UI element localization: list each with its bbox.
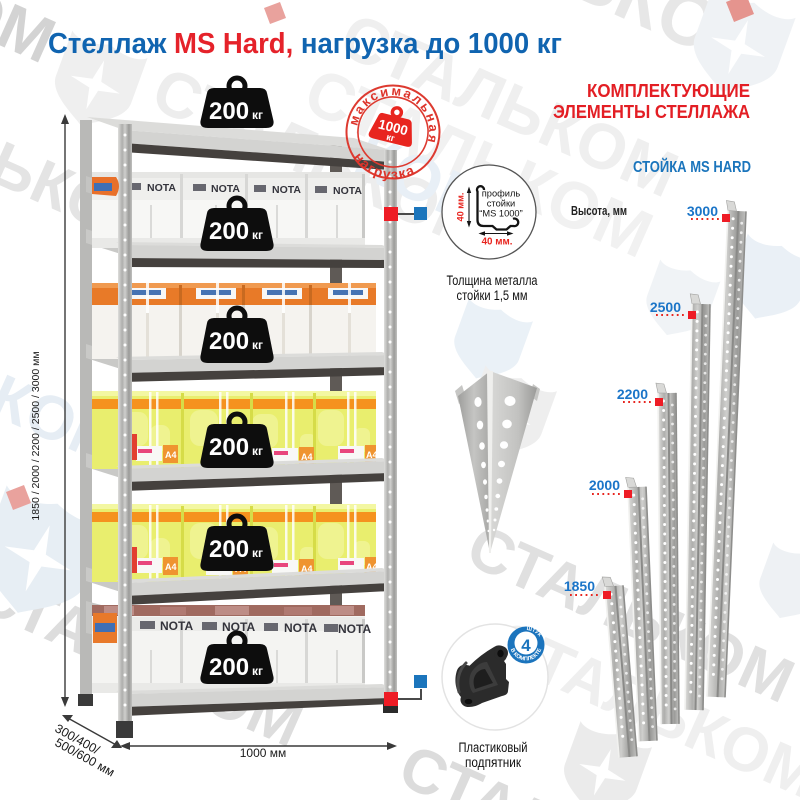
- svg-text:2500: 2500: [650, 299, 681, 315]
- svg-text:NOTA: NOTA: [147, 182, 176, 194]
- svg-text:NOTA: NOTA: [333, 185, 362, 197]
- svg-text:Пластиковый: Пластиковый: [459, 740, 528, 755]
- svg-text:КОМПЛЕКТУЮЩИЕ: КОМПЛЕКТУЮЩИЕ: [587, 81, 750, 101]
- svg-text:NOTA: NOTA: [284, 621, 317, 635]
- svg-text:40 мм.: 40 мм.: [482, 237, 513, 248]
- svg-text:2200: 2200: [617, 386, 648, 402]
- svg-text:СТОЙКА MS HARD: СТОЙКА MS HARD: [633, 158, 751, 176]
- svg-text:4: 4: [521, 636, 531, 655]
- svg-text:Высота, мм: Высота, мм: [571, 204, 627, 218]
- svg-text:подпятник: подпятник: [465, 755, 521, 770]
- svg-text:“MS 1000”: “MS 1000”: [479, 209, 522, 219]
- svg-text:Стеллаж MS Hard, нагрузка до 1: Стеллаж MS Hard, нагрузка до 1000 кг: [48, 28, 562, 60]
- svg-text:2000: 2000: [589, 477, 620, 493]
- svg-text:1850 / 2000 / 2200 / 2500 / 30: 1850 / 2000 / 2200 / 2500 / 3000 мм: [30, 351, 42, 520]
- svg-text:Толщина металла: Толщина металла: [447, 273, 538, 288]
- svg-text:стойки: стойки: [487, 199, 515, 209]
- svg-text:NOTA: NOTA: [160, 619, 193, 633]
- svg-text:NOTA: NOTA: [338, 622, 371, 636]
- svg-text:ЭЛЕМЕНТЫ СТЕЛЛАЖА: ЭЛЕМЕНТЫ СТЕЛЛАЖА: [553, 102, 750, 122]
- svg-text:1000 мм: 1000 мм: [240, 746, 287, 760]
- svg-text:профиль: профиль: [482, 189, 521, 199]
- svg-text:40 мм.: 40 мм.: [456, 193, 466, 222]
- svg-text:А4: А4: [165, 562, 177, 572]
- svg-text:3000: 3000: [687, 203, 718, 219]
- svg-text:NOTA: NOTA: [211, 183, 240, 195]
- svg-text:1850: 1850: [564, 578, 595, 594]
- svg-text:NOTA: NOTA: [272, 184, 301, 196]
- svg-text:стойки 1,5 мм: стойки 1,5 мм: [457, 288, 528, 303]
- svg-text:А4: А4: [165, 450, 177, 460]
